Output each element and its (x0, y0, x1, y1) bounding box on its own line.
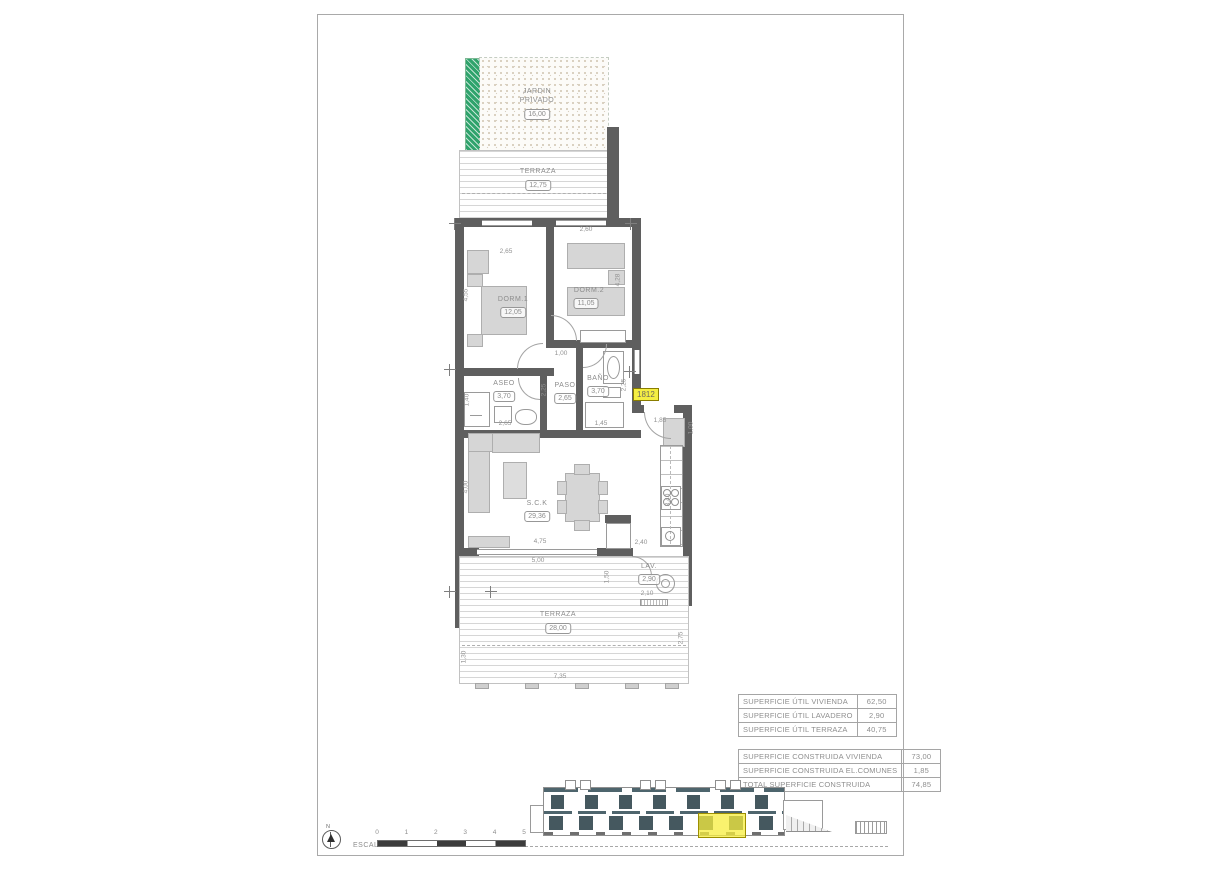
wall-segment (576, 348, 583, 430)
scale-tick: 5 (522, 829, 526, 836)
dimension-label: 2,10 (641, 590, 654, 597)
dorm1-wardrobe (467, 250, 489, 274)
table-cell-value: 1,85 (902, 764, 941, 778)
lav-vent-grille (640, 599, 668, 606)
shower-drain (470, 415, 482, 416)
unit-number-badge: 1812 (633, 388, 659, 401)
superficie-util-table: SUPERFICIE ÚTIL VIVIENDA 62,50 SUPERFICI… (738, 694, 897, 737)
room-label-jardin: JARDIN (523, 88, 551, 95)
wall-segment (455, 218, 464, 558)
room-label-sck: S.C.K (527, 500, 548, 507)
table-cell-label: SUPERFICIE CONSTRUIDA VIVIENDA (739, 750, 902, 764)
aseo-sink (515, 409, 537, 425)
planter-box (606, 523, 631, 549)
room-label-terraza-top: TERRAZA (520, 168, 556, 175)
dorm2-desk (580, 330, 626, 343)
window-dorm1 (482, 220, 532, 226)
dimension-label: 4,55 (463, 289, 470, 302)
balcony-band (544, 811, 784, 814)
datum-cross-marker (624, 366, 636, 378)
chair (557, 500, 567, 514)
room-label-dorm1: DORM.1 (498, 296, 528, 303)
north-arrow-icon (322, 830, 341, 849)
dimension-label: 1,45 (595, 420, 608, 427)
room-label-dorm2: DORM.2 (574, 287, 604, 294)
dimension-label: 3,40 (665, 494, 672, 507)
washing-machine-drum (661, 579, 670, 588)
dimension-label: 1,00 (555, 350, 568, 357)
dimension-label: 4,28 (615, 274, 622, 287)
table-cell-label: SUPERFICIE ÚTIL TERRAZA (739, 723, 858, 737)
parapet-block (565, 780, 576, 790)
area-value-terraza-top: 12,75 (525, 180, 551, 191)
table-row: SUPERFICIE CONSTRUIDA EL.COMUNES 1,85 (739, 764, 941, 778)
sliding-door-living (477, 549, 597, 555)
dimension-label: 2,25 (541, 384, 548, 397)
datum-cross-marker (444, 586, 456, 598)
hob-burner (671, 489, 679, 497)
building-elevation (530, 777, 890, 852)
table-row: SUPERFICIE ÚTIL LAVADERO 2,90 (739, 709, 897, 723)
dimension-label: 2,75 (678, 632, 685, 645)
chair (598, 481, 608, 495)
parapet-block (730, 780, 741, 790)
scale-ticks: 0 1 2 3 4 5 (377, 829, 524, 839)
wall-segment (632, 218, 641, 410)
room-label-paso: PASO (555, 382, 576, 389)
dimension-label: 1,00 (688, 422, 695, 435)
wall-segment (455, 548, 479, 556)
dining-table (565, 473, 600, 522)
projection-dashed-line (462, 645, 686, 646)
area-value-jardin: 16,00 (524, 109, 550, 120)
table-row: SUPERFICIE CONSTRUIDA VIVIENDA 73,00 (739, 750, 941, 764)
parapet-block (640, 780, 651, 790)
garden-green-hedge (466, 59, 480, 150)
table-cell-value: 73,00 (902, 750, 941, 764)
wall-segment (607, 150, 619, 222)
sofa-corner (468, 433, 494, 452)
scale-tick: 2 (434, 829, 438, 836)
sink-bowl (665, 531, 675, 541)
side-stairs (855, 821, 887, 834)
scale-tick: 1 (405, 829, 409, 836)
rail-post (625, 683, 639, 689)
area-value-lav: 2,90 (638, 574, 660, 585)
ground-line (490, 846, 888, 847)
table-row: SUPERFICIE ÚTIL TERRAZA 40,75 (739, 723, 897, 737)
table-row: SUPERFICIE ÚTIL VIVIENDA 62,50 (739, 695, 897, 709)
dimension-label: 4,00 (463, 481, 470, 494)
area-value-terraza-bottom: 28,00 (545, 623, 571, 634)
plinth-vents (544, 832, 784, 835)
table-cell-value: 74,85 (902, 778, 941, 792)
rail-post (475, 683, 489, 689)
rail-post (525, 683, 539, 689)
rail-post (575, 683, 589, 689)
room-label-jardin2: PRIVADO (520, 97, 555, 104)
area-value-dorm2: 11,05 (574, 298, 599, 309)
room-label-terraza-bottom: TERRAZA (540, 611, 576, 618)
dimension-label: 1,40 (464, 394, 471, 407)
dimension-label: 2,40 (635, 539, 648, 546)
datum-cross-marker (485, 586, 497, 598)
dimension-label: 2,65 (500, 248, 513, 255)
lower-floor-windows (544, 816, 784, 830)
dimension-label: 1,50 (604, 571, 611, 584)
wall-segment (607, 127, 619, 152)
highlighted-unit (698, 813, 746, 838)
room-label-lav: LAV. (641, 563, 657, 570)
dimension-label: 7,35 (554, 673, 567, 680)
parapet-block (655, 780, 666, 790)
sideboard (468, 536, 510, 548)
dimension-label: 1,85 (654, 417, 667, 424)
table-cell-value: 40,75 (857, 723, 896, 737)
chair (574, 520, 590, 531)
dimension-label: 2,25 (621, 379, 628, 392)
elevation-building-body (543, 787, 785, 836)
dimension-label: 1,30 (461, 651, 468, 664)
dimension-label: 2,65 (499, 420, 512, 427)
parapet-block (715, 780, 726, 790)
needle-tip (327, 834, 335, 842)
chair (574, 464, 590, 475)
scale-tick: 0 (375, 829, 379, 836)
datum-cross-marker (444, 364, 456, 376)
coffee-table (503, 462, 527, 499)
scale-tick: 4 (493, 829, 497, 836)
sofa-seat (492, 433, 540, 453)
dimension-label: 2,60 (580, 226, 593, 233)
room-label-bano: BAÑO (587, 375, 609, 382)
chair (557, 481, 567, 495)
wall-segment (540, 368, 547, 430)
area-value-aseo: 3,70 (493, 391, 515, 402)
upper-floor-windows (544, 795, 784, 809)
dimension-label: 5,00 (532, 557, 545, 564)
table-cell-value: 2,90 (857, 709, 896, 723)
scale-tick: 3 (463, 829, 467, 836)
room-label-aseo: ASEO (493, 380, 514, 387)
scale-bar (377, 840, 526, 847)
area-value-paso: 2,65 (554, 393, 576, 404)
sofa-seat (468, 451, 490, 513)
rail-post (665, 683, 679, 689)
chair (598, 500, 608, 514)
datum-cross-marker (449, 218, 461, 230)
parapet-block (580, 780, 591, 790)
retaining-wall (530, 805, 544, 833)
table-cell-label: SUPERFICIE ÚTIL LAVADERO (739, 709, 858, 723)
table-cell-value: 62,50 (857, 695, 896, 709)
area-value-bano: 3,70 (587, 386, 609, 397)
plan-sheet: JARDIN PRIVADO 16,00 TERRAZA 12,75 DORM.… (0, 0, 1220, 870)
dorm2-bed (567, 243, 625, 269)
datum-cross-marker (625, 218, 637, 230)
table-cell-label: SUPERFICIE CONSTRUIDA EL.COMUNES (739, 764, 902, 778)
area-value-dorm1: 12,05 (500, 307, 526, 318)
area-value-sck: 29,36 (524, 511, 550, 522)
scale-assembly: N ESCALA : 0 1 2 3 4 5 (320, 822, 530, 852)
wall-segment (605, 515, 631, 523)
hob-burner (671, 498, 679, 506)
dimension-label: 4,75 (534, 538, 547, 545)
table-cell-label: SUPERFICIE ÚTIL VIVIENDA (739, 695, 858, 709)
projection-dashed-line (462, 193, 606, 194)
nightstand (467, 334, 483, 347)
garden-gravel-area (480, 58, 608, 150)
